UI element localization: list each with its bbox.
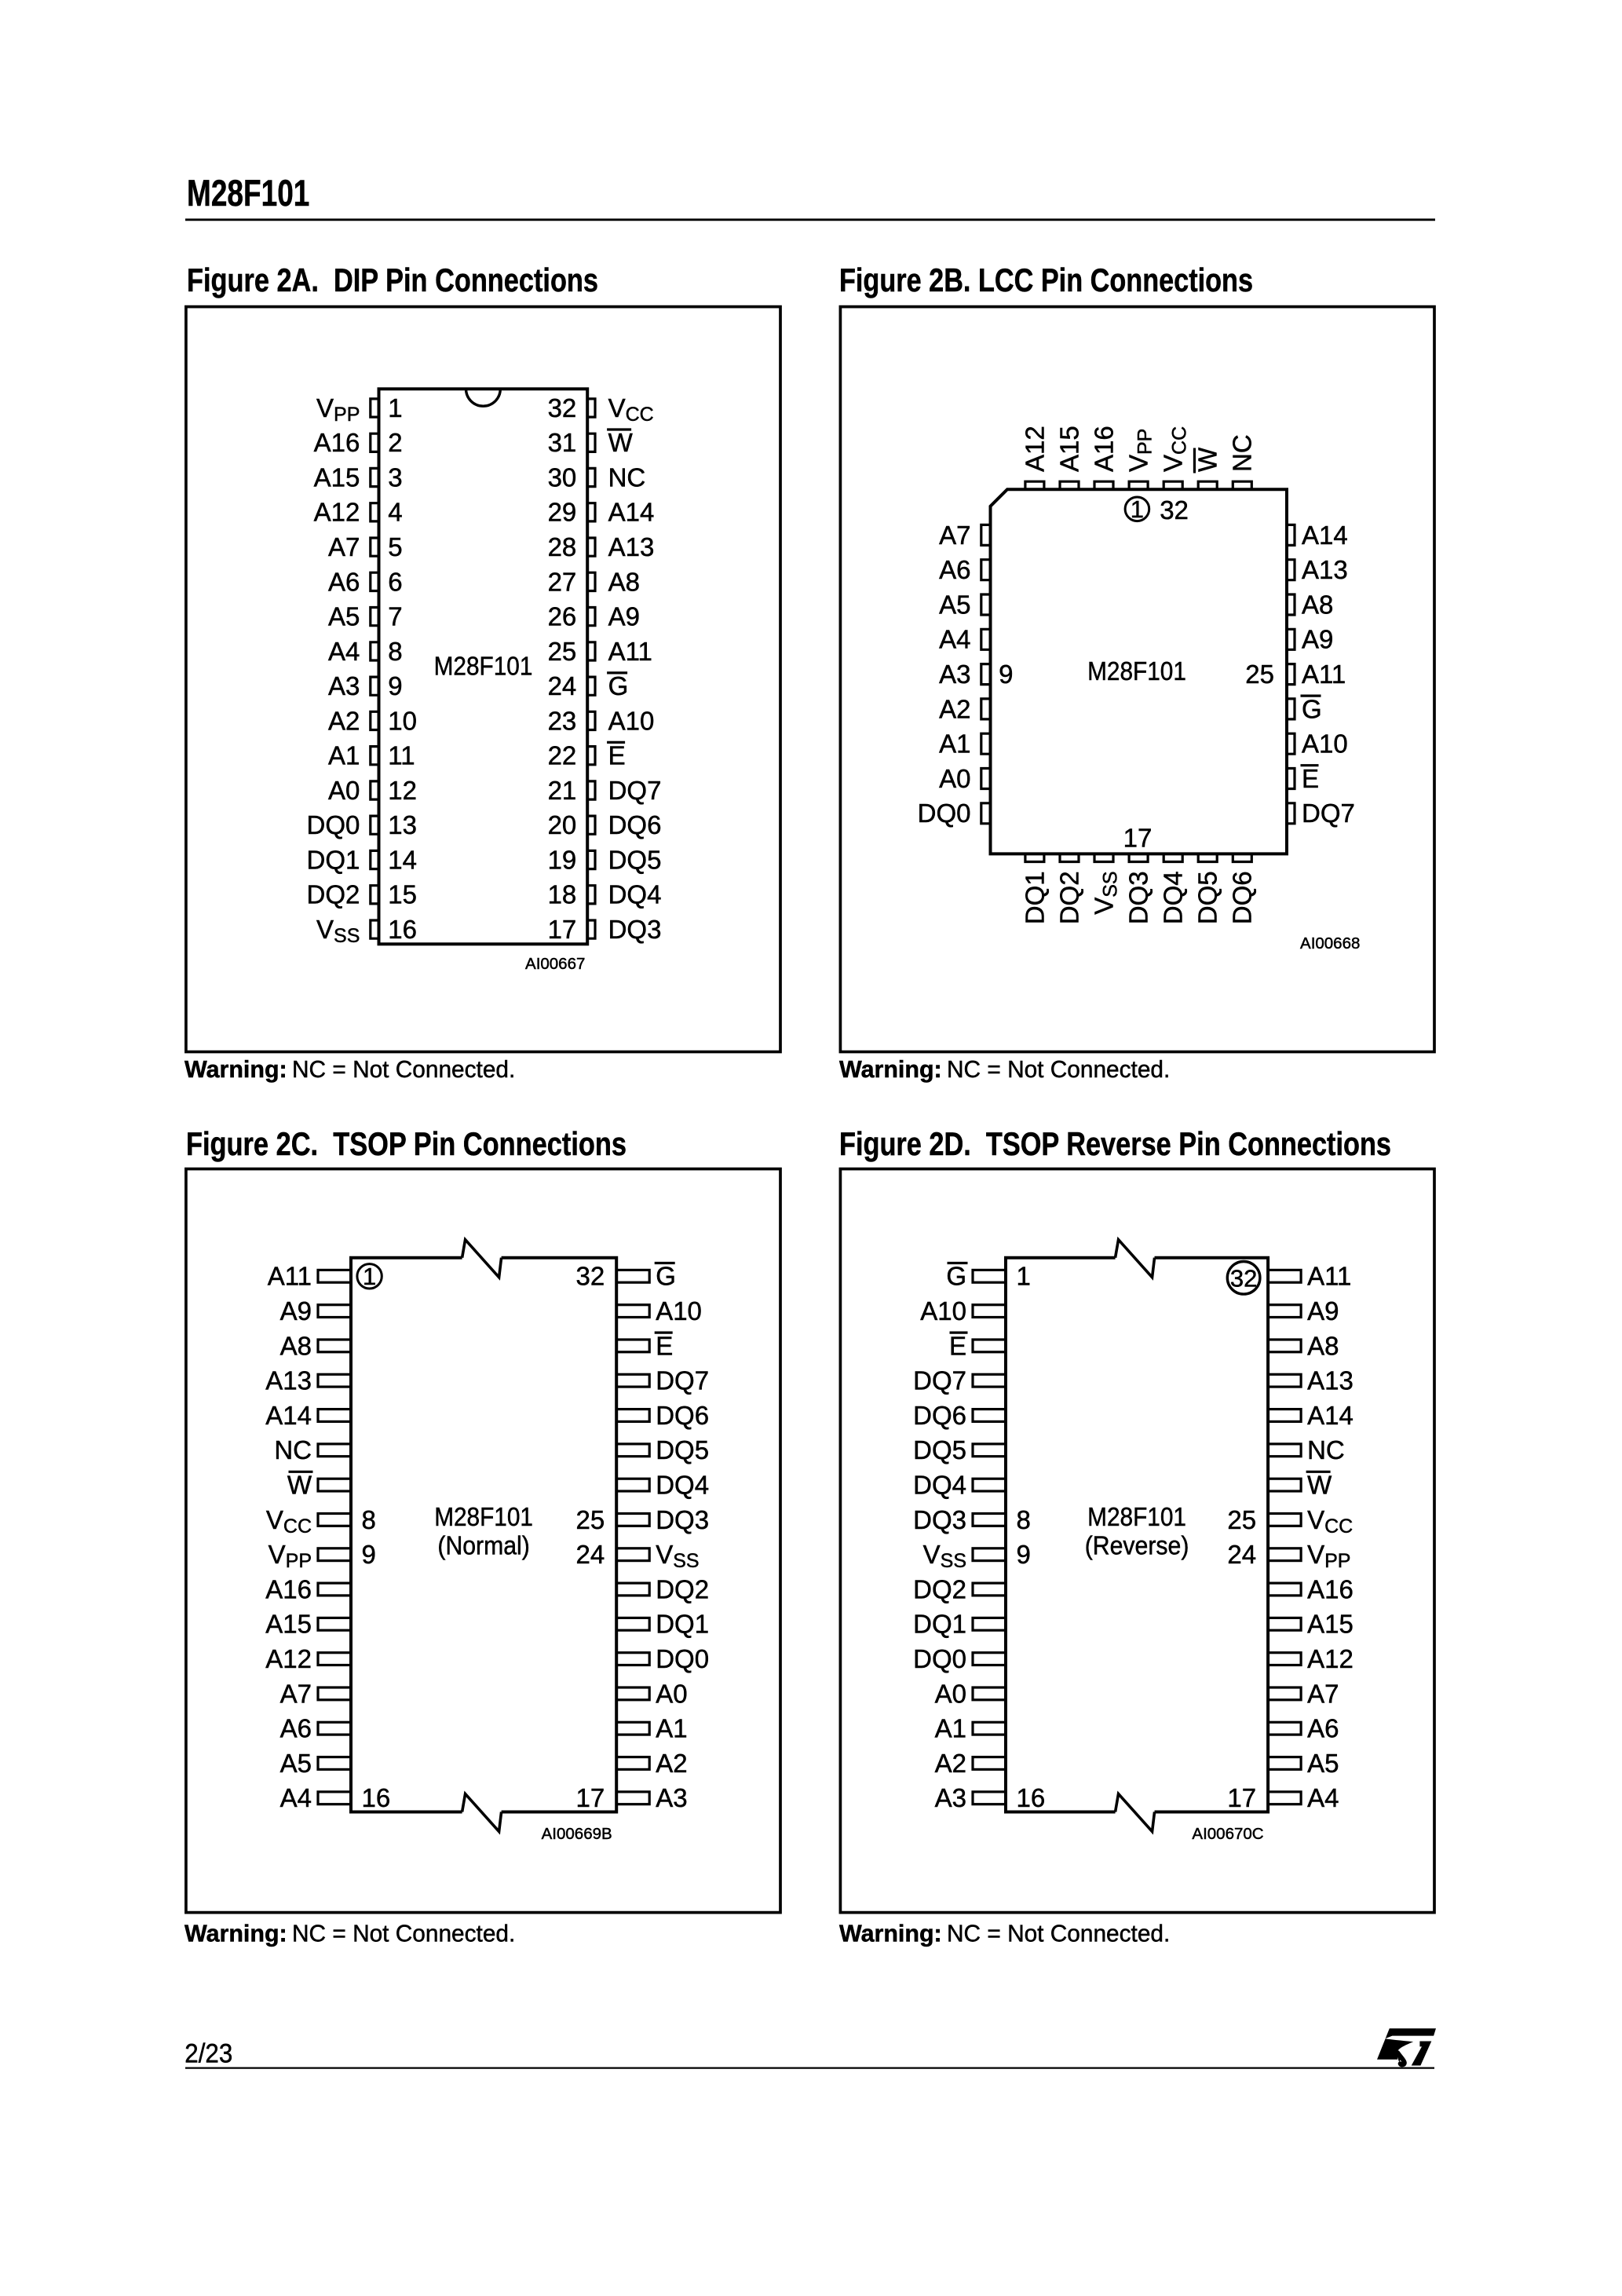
svg-text:25: 25 (1227, 1505, 1256, 1534)
svg-text:E: E (1302, 764, 1319, 793)
svg-text:5: 5 (388, 532, 402, 561)
svg-text:A16: A16 (1307, 1574, 1353, 1603)
svg-text:A0: A0 (935, 1679, 966, 1708)
svg-text:27: 27 (548, 567, 577, 596)
svg-text:NC = Not Connected.: NC = Not Connected. (292, 1055, 515, 1083)
svg-text:A6: A6 (328, 567, 360, 596)
svg-text:A10: A10 (1302, 729, 1348, 759)
svg-text:DQ0: DQ0 (307, 810, 360, 839)
svg-text:W: W (1193, 447, 1222, 472)
svg-text:11: 11 (388, 741, 415, 770)
svg-text:Figure 2C. TSOP Pin Connectio: Figure 2C. TSOP Pin Connections (186, 1125, 627, 1162)
svg-text:13: 13 (388, 810, 417, 839)
svg-text:Warning:: Warning: (839, 1055, 942, 1083)
svg-text:A12: A12 (1307, 1644, 1353, 1673)
svg-text:3: 3 (388, 462, 402, 492)
svg-text:DQ3: DQ3 (1124, 871, 1153, 924)
svg-text:A13: A13 (1307, 1366, 1353, 1395)
svg-text:A15: A15 (265, 1610, 312, 1639)
svg-text:DQ1: DQ1 (913, 1610, 966, 1639)
svg-text:A6: A6 (939, 555, 970, 584)
svg-text:28: 28 (548, 532, 577, 561)
svg-text:E: E (656, 1331, 673, 1360)
svg-text:A9: A9 (608, 602, 640, 631)
svg-text:A0: A0 (656, 1679, 687, 1708)
svg-text:DQ7: DQ7 (913, 1366, 966, 1395)
svg-text:DQ1: DQ1 (1020, 871, 1049, 924)
svg-text:26: 26 (548, 602, 577, 631)
svg-text:DQ1: DQ1 (307, 845, 360, 874)
svg-text:A3: A3 (939, 660, 970, 689)
svg-text:17: 17 (1227, 1783, 1256, 1812)
svg-text:NC = Not Connected.: NC = Not Connected. (947, 1920, 1170, 1947)
svg-text:A7: A7 (328, 532, 360, 561)
svg-text:A14: A14 (1302, 521, 1348, 550)
svg-text:A2: A2 (935, 1749, 966, 1778)
svg-text:A15: A15 (1054, 426, 1083, 472)
svg-text:A2: A2 (656, 1749, 687, 1778)
svg-text:16: 16 (388, 915, 417, 944)
svg-text:A4: A4 (1307, 1783, 1339, 1812)
svg-text:A9: A9 (1307, 1296, 1339, 1325)
svg-text:DQ7: DQ7 (1302, 799, 1355, 828)
svg-text:A1: A1 (939, 729, 970, 759)
svg-text:A11: A11 (1302, 660, 1346, 689)
svg-text:25: 25 (575, 1505, 605, 1534)
svg-text:A9: A9 (1302, 625, 1333, 654)
svg-text:29: 29 (548, 498, 577, 527)
svg-text:A16: A16 (1089, 426, 1118, 472)
svg-text:32: 32 (1160, 495, 1189, 525)
svg-text:DQ5: DQ5 (1193, 871, 1222, 924)
svg-text:Figure 2B. LCC Pin Connections: Figure 2B. LCC Pin Connections (839, 261, 1253, 298)
svg-text:A4: A4 (939, 625, 970, 654)
svg-text:DQ4: DQ4 (913, 1471, 966, 1500)
svg-text:A1: A1 (328, 741, 360, 770)
svg-text:23: 23 (548, 706, 577, 735)
svg-text:7: 7 (388, 602, 402, 631)
svg-text:32: 32 (1230, 1264, 1257, 1292)
svg-text:M28F101: M28F101 (1087, 656, 1186, 686)
svg-text:8: 8 (1017, 1505, 1031, 1534)
svg-text:17: 17 (575, 1783, 605, 1812)
svg-text:9: 9 (388, 671, 402, 700)
svg-text:A11: A11 (608, 637, 652, 666)
svg-text:A12: A12 (314, 498, 360, 527)
svg-text:DQ2: DQ2 (1054, 871, 1083, 924)
svg-text:17: 17 (548, 915, 577, 944)
svg-text:A5: A5 (939, 590, 970, 619)
svg-text:A0: A0 (939, 764, 970, 793)
svg-text:15: 15 (388, 880, 417, 909)
svg-text:DQ4: DQ4 (608, 880, 662, 909)
svg-text:A13: A13 (265, 1366, 312, 1395)
svg-text:16: 16 (362, 1783, 391, 1812)
svg-text:Warning:: Warning: (184, 1055, 287, 1083)
svg-text:2: 2 (388, 428, 402, 457)
svg-text:14: 14 (388, 845, 417, 874)
svg-text:A16: A16 (314, 428, 360, 457)
svg-text:DQ7: DQ7 (608, 776, 662, 805)
svg-text:DQ5: DQ5 (913, 1435, 966, 1464)
svg-text:M28F101: M28F101 (187, 172, 309, 214)
svg-text:30: 30 (548, 462, 577, 492)
svg-text:DQ3: DQ3 (656, 1505, 709, 1534)
svg-text:Warning:: Warning: (184, 1920, 287, 1947)
svg-text:20: 20 (548, 810, 577, 839)
svg-text:8: 8 (362, 1505, 376, 1534)
svg-text:A10: A10 (920, 1296, 966, 1325)
svg-text:Figure 2D. TSOP Reverse Pin C: Figure 2D. TSOP Reverse Pin Connections (839, 1125, 1391, 1162)
svg-text:DQ7: DQ7 (656, 1366, 709, 1395)
svg-text:AI00667: AI00667 (525, 955, 585, 973)
svg-text:A1: A1 (656, 1714, 687, 1743)
svg-text:A8: A8 (1307, 1331, 1339, 1360)
svg-text:G: G (1302, 694, 1322, 723)
svg-text:A15: A15 (314, 462, 360, 492)
svg-text:DQ6: DQ6 (1228, 871, 1257, 924)
svg-text:9: 9 (999, 660, 1013, 689)
svg-text:31: 31 (548, 428, 577, 457)
svg-text:A5: A5 (280, 1749, 312, 1778)
svg-text:A11: A11 (1307, 1262, 1351, 1291)
svg-text:A3: A3 (935, 1783, 966, 1812)
svg-text:A3: A3 (656, 1783, 687, 1812)
svg-text:DQ0: DQ0 (656, 1644, 709, 1673)
svg-text:A12: A12 (265, 1644, 312, 1673)
svg-text:A9: A9 (280, 1296, 312, 1325)
svg-text:A7: A7 (280, 1679, 312, 1708)
svg-text:24: 24 (548, 671, 577, 700)
svg-text:G: G (608, 671, 629, 700)
svg-text:DQ3: DQ3 (913, 1505, 966, 1534)
svg-text:AI00670C: AI00670C (1192, 1825, 1263, 1843)
svg-text:9: 9 (362, 1540, 376, 1569)
svg-text:A4: A4 (328, 637, 360, 666)
svg-text:AI00668: AI00668 (1300, 934, 1360, 952)
svg-text:(Normal): (Normal) (437, 1531, 529, 1560)
svg-text:A14: A14 (608, 498, 655, 527)
svg-text:17: 17 (1123, 824, 1153, 853)
svg-text:W: W (287, 1471, 312, 1500)
svg-text:32: 32 (548, 393, 577, 422)
svg-text:24: 24 (1227, 1540, 1256, 1569)
svg-text:2/23: 2/23 (184, 2039, 232, 2069)
svg-text:A13: A13 (608, 532, 655, 561)
svg-text:19: 19 (548, 845, 577, 874)
svg-text:A11: A11 (268, 1262, 312, 1291)
svg-text:A4: A4 (280, 1783, 312, 1812)
svg-text:10: 10 (388, 706, 417, 735)
svg-text:NC: NC (1307, 1435, 1345, 1464)
svg-text:DQ2: DQ2 (656, 1574, 709, 1603)
svg-text:DQ4: DQ4 (656, 1471, 709, 1500)
svg-text:A15: A15 (1307, 1610, 1353, 1639)
svg-text:1: 1 (1017, 1262, 1031, 1291)
svg-text:A12: A12 (1020, 426, 1049, 472)
svg-text:A6: A6 (1307, 1714, 1339, 1743)
svg-text:NC: NC (274, 1435, 312, 1464)
svg-text:NC: NC (608, 462, 646, 492)
svg-text:16: 16 (1017, 1783, 1046, 1812)
svg-text:8: 8 (388, 637, 402, 666)
svg-text:4: 4 (388, 498, 402, 527)
svg-text:NC = Not Connected.: NC = Not Connected. (947, 1055, 1170, 1083)
svg-text:6: 6 (388, 567, 402, 596)
svg-text:1: 1 (388, 393, 402, 422)
svg-text:DQ6: DQ6 (913, 1401, 966, 1430)
svg-text:A3: A3 (328, 671, 360, 700)
svg-text:W: W (608, 428, 634, 457)
svg-text:DQ2: DQ2 (307, 880, 360, 909)
svg-text:(Reverse): (Reverse) (1085, 1531, 1189, 1560)
svg-text:1: 1 (363, 1263, 376, 1290)
svg-text:22: 22 (548, 741, 577, 770)
svg-text:W: W (1307, 1471, 1332, 1500)
svg-text:G: G (656, 1262, 676, 1291)
svg-text:25: 25 (1245, 660, 1274, 689)
svg-text:E: E (949, 1331, 966, 1360)
svg-text:M28F101: M28F101 (434, 651, 533, 680)
svg-text:DQ1: DQ1 (656, 1610, 709, 1639)
svg-text:A10: A10 (656, 1296, 702, 1325)
svg-text:A8: A8 (608, 567, 640, 596)
svg-text:DQ5: DQ5 (608, 845, 662, 874)
svg-text:DQ3: DQ3 (608, 915, 662, 944)
svg-text:1: 1 (1131, 495, 1144, 523)
svg-text:21: 21 (548, 776, 577, 805)
svg-text:25: 25 (548, 637, 577, 666)
svg-text:E: E (608, 741, 626, 770)
svg-text:A14: A14 (265, 1401, 312, 1430)
svg-text:NC: NC (1228, 434, 1257, 472)
svg-text:DQ6: DQ6 (656, 1401, 709, 1430)
svg-text:A2: A2 (328, 706, 360, 735)
svg-text:M28F101: M28F101 (434, 1502, 533, 1531)
svg-text:32: 32 (575, 1262, 605, 1291)
svg-text:NC = Not Connected.: NC = Not Connected. (292, 1920, 515, 1947)
svg-text:A2: A2 (939, 694, 970, 723)
svg-text:A14: A14 (1307, 1401, 1353, 1430)
svg-text:DQ2: DQ2 (913, 1574, 966, 1603)
svg-text:12: 12 (388, 776, 417, 805)
svg-text:A8: A8 (1302, 590, 1333, 619)
svg-text:DQ0: DQ0 (913, 1644, 966, 1673)
svg-text:DQ6: DQ6 (608, 810, 662, 839)
svg-text:9: 9 (1017, 1540, 1031, 1569)
svg-text:DQ5: DQ5 (656, 1435, 709, 1464)
svg-text:G: G (946, 1262, 966, 1291)
svg-text:24: 24 (575, 1540, 605, 1569)
svg-text:A5: A5 (328, 602, 360, 631)
svg-text:A7: A7 (1307, 1679, 1339, 1708)
svg-text:A1: A1 (935, 1714, 966, 1743)
svg-text:DQ0: DQ0 (918, 799, 971, 828)
svg-text:Warning:: Warning: (839, 1920, 942, 1947)
svg-text:A13: A13 (1302, 555, 1348, 584)
svg-text:A16: A16 (265, 1574, 312, 1603)
svg-text:A10: A10 (608, 706, 655, 735)
svg-text:A5: A5 (1307, 1749, 1339, 1778)
svg-text:A0: A0 (328, 776, 360, 805)
svg-text:A8: A8 (280, 1331, 312, 1360)
svg-text:Figure 2A. DIP Pin Connection: Figure 2A. DIP Pin Connections (187, 261, 598, 298)
svg-text:A7: A7 (939, 521, 970, 550)
svg-text:AI00669B: AI00669B (542, 1825, 612, 1843)
svg-text:18: 18 (548, 880, 577, 909)
svg-text:M28F101: M28F101 (1087, 1502, 1186, 1531)
svg-text:A6: A6 (280, 1714, 312, 1743)
svg-text:DQ4: DQ4 (1159, 871, 1188, 924)
